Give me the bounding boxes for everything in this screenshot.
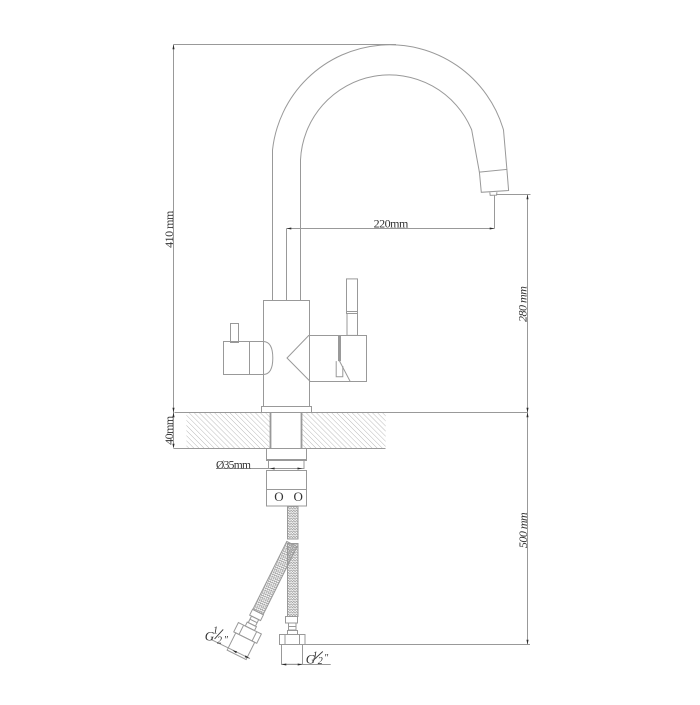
svg-text:″: ″ — [224, 635, 229, 646]
svg-text:40mm: 40mm — [162, 415, 176, 445]
svg-text:O: O — [294, 489, 303, 504]
svg-text:2: 2 — [318, 656, 323, 667]
svg-text:500 mm: 500 mm — [516, 512, 530, 548]
svg-text:Ø35mm: Ø35mm — [216, 459, 251, 471]
svg-text:410 mm: 410 mm — [162, 210, 176, 248]
svg-text:2: 2 — [217, 635, 222, 646]
svg-text:220mm: 220mm — [374, 217, 409, 231]
svg-text:280 mm: 280 mm — [516, 286, 530, 322]
svg-text:O: O — [274, 489, 283, 504]
svg-text:″: ″ — [324, 653, 329, 664]
